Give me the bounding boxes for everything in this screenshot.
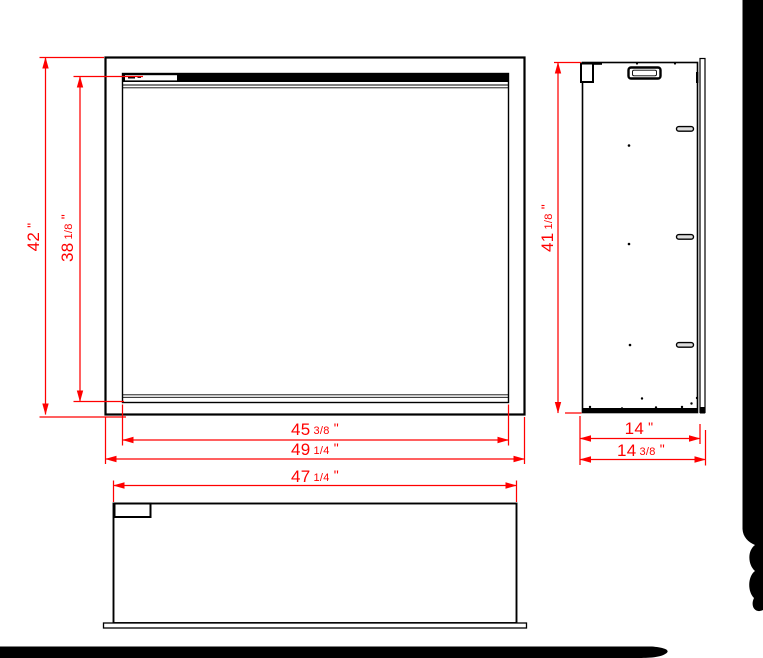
dim-label-front-opening-width: 453/8" bbox=[291, 420, 339, 440]
top-bracket bbox=[581, 64, 593, 83]
top-edge-mark bbox=[636, 62, 638, 64]
dim-label-front-outer-height: 42" bbox=[24, 223, 44, 252]
dim-label-side-depth-body: 14" bbox=[625, 419, 654, 439]
top-vent-outer bbox=[629, 68, 661, 79]
screw-hole bbox=[629, 344, 632, 347]
dim-unit: " bbox=[334, 467, 339, 483]
backdrop-right-strip bbox=[743, 0, 763, 611]
dim-unit: " bbox=[648, 419, 653, 435]
dim-label-front-opening-height: 381/8" bbox=[58, 214, 78, 262]
dim-label-top-view-width: 471/4" bbox=[291, 467, 339, 487]
vent-slot bbox=[677, 235, 694, 240]
vent-slot bbox=[677, 127, 694, 132]
top-view-control-box bbox=[115, 504, 151, 518]
dim-value: 38 bbox=[58, 242, 78, 262]
dim-unit: " bbox=[24, 223, 40, 228]
dim-fraction: 1/4 bbox=[314, 472, 330, 484]
front-opening-frame bbox=[123, 74, 509, 403]
dim-unit: " bbox=[58, 214, 74, 219]
mounting-flange bbox=[700, 59, 705, 413]
top-vent-inner bbox=[633, 70, 657, 76]
dim-label-front-outer-width: 491/4" bbox=[291, 440, 339, 460]
dim-value: 41 bbox=[538, 232, 558, 252]
dim-value: 47 bbox=[291, 467, 311, 487]
front-view-drawing bbox=[106, 58, 525, 415]
screw-hole bbox=[655, 406, 657, 408]
dim-fraction: 1/8 bbox=[63, 223, 75, 239]
dim-fraction: 3/8 bbox=[314, 425, 330, 437]
dim-label-side-depth-overall: 143/8" bbox=[617, 441, 665, 461]
dim-value: 42 bbox=[24, 232, 44, 252]
screw-hole bbox=[690, 402, 692, 404]
top-edge-mark bbox=[674, 62, 676, 64]
dim-fraction: 3/8 bbox=[640, 446, 656, 458]
dim-fraction: 1/8 bbox=[543, 213, 555, 229]
screw-hole bbox=[628, 243, 631, 246]
screw-hole bbox=[641, 397, 643, 399]
screw-hole bbox=[621, 407, 623, 409]
drawing-page: 42" 381/8" 453/8" 491/4" 471/4" 411/8" 1… bbox=[0, 0, 763, 658]
side-view-drawing bbox=[581, 59, 705, 414]
technical-drawing bbox=[0, 0, 763, 658]
dim-unit: " bbox=[334, 440, 339, 456]
side-bottom-edge bbox=[583, 408, 698, 413]
backdrop-bottom-strip bbox=[0, 647, 668, 658]
screw-hole bbox=[681, 406, 683, 408]
top-view-flange bbox=[104, 623, 527, 628]
dim-unit: " bbox=[334, 420, 339, 436]
front-outer-frame bbox=[106, 58, 525, 415]
screw-hole bbox=[628, 144, 631, 147]
screw-hole bbox=[589, 406, 591, 408]
dim-value: 14 bbox=[625, 419, 645, 439]
flange-foot bbox=[700, 407, 705, 414]
dim-value: 49 bbox=[291, 440, 311, 460]
dimension-lines bbox=[40, 58, 706, 503]
dim-label-side-height: 411/8" bbox=[538, 204, 558, 252]
top-view-body bbox=[114, 504, 517, 624]
bottom-view-drawing bbox=[104, 504, 527, 629]
dim-unit: " bbox=[538, 204, 554, 209]
vent-slot bbox=[677, 343, 694, 348]
top-edge-mark bbox=[594, 63, 602, 65]
dim-fraction: 1/4 bbox=[314, 445, 330, 457]
flange-inner-tick bbox=[696, 72, 698, 83]
dim-value: 14 bbox=[617, 441, 637, 461]
dim-unit: " bbox=[660, 441, 665, 457]
dim-value: 45 bbox=[291, 420, 311, 440]
screw-hole bbox=[696, 397, 698, 399]
louver-band bbox=[123, 74, 509, 83]
